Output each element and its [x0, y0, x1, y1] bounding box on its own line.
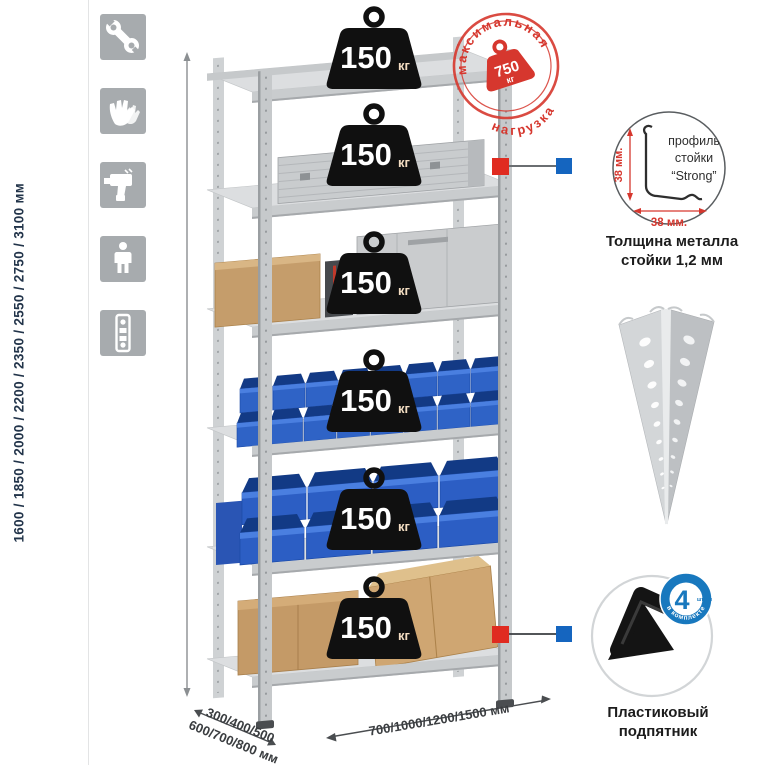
- front-right-post: [496, 49, 514, 709]
- height-dimension-line: [184, 52, 191, 697]
- profile-caption: Толщина металла стойки 1,2 мм: [592, 233, 752, 271]
- height-dimension-label: 1600 / 1850 / 2000 / 2200 / 2350 / 2550 …: [12, 203, 27, 543]
- svg-text:кг: кг: [398, 155, 411, 170]
- svg-text:150: 150: [340, 383, 392, 418]
- svg-text:“Strong”: “Strong”: [671, 169, 716, 183]
- svg-text:38 мм.: 38 мм.: [613, 148, 625, 183]
- red-marker-top: [492, 158, 509, 175]
- svg-text:кг: кг: [398, 283, 411, 298]
- bin-side-view: [216, 501, 242, 565]
- svg-text:38 мм.: 38 мм.: [651, 217, 687, 229]
- quantity-badge: 4 штуки в комплекте: [660, 573, 712, 625]
- foot-caption-line-1: Пластиковый: [578, 704, 738, 723]
- weight-badge-2: 150 кг: [327, 106, 422, 186]
- weight-badge-4: 150 кг: [327, 352, 422, 432]
- svg-text:профиль: профиль: [668, 134, 720, 148]
- svg-text:150: 150: [340, 501, 392, 536]
- svg-text:кг: кг: [398, 628, 411, 643]
- svg-text:150: 150: [340, 610, 392, 645]
- svg-text:кг: кг: [398, 519, 411, 534]
- blue-marker-bottom: [556, 626, 572, 642]
- profile-caption-line-2: стойки 1,2 мм: [592, 252, 752, 271]
- foot-caption-line-2: подпятник: [578, 723, 738, 742]
- svg-text:штуки: штуки: [697, 597, 712, 603]
- profile-caption-line-1: Толщина металла: [592, 233, 752, 252]
- foot-callout: [492, 626, 572, 643]
- svg-text:нагрузка: нагрузка: [486, 99, 563, 147]
- product-infographic: 150 кг 150 кг 150 кг 150 кг 150 кг: [0, 0, 765, 765]
- foot-detail-circle: 4 штуки в комплекте: [592, 573, 712, 696]
- svg-text:стойки: стойки: [675, 151, 713, 165]
- weight-badge-1: 150 кг: [327, 9, 422, 89]
- rack-illustration: 150 кг 150 кг 150 кг 150 кг 150 кг: [0, 0, 765, 765]
- svg-text:150: 150: [340, 137, 392, 172]
- red-marker-bottom: [492, 626, 509, 643]
- svg-text:кг: кг: [398, 401, 411, 416]
- svg-text:кг: кг: [398, 58, 411, 73]
- blue-marker-top: [556, 158, 572, 174]
- svg-text:150: 150: [340, 265, 392, 300]
- front-left-post: [256, 70, 274, 730]
- svg-text:150: 150: [340, 40, 392, 75]
- svg-text:4: 4: [674, 585, 689, 615]
- angle-post-image: [619, 307, 714, 524]
- foot-caption: Пластиковый подпятник: [578, 704, 738, 742]
- profile-callout: [492, 158, 572, 175]
- profile-detail-circle: 38 мм. 38 мм. профиль стойки “Strong”: [613, 112, 725, 229]
